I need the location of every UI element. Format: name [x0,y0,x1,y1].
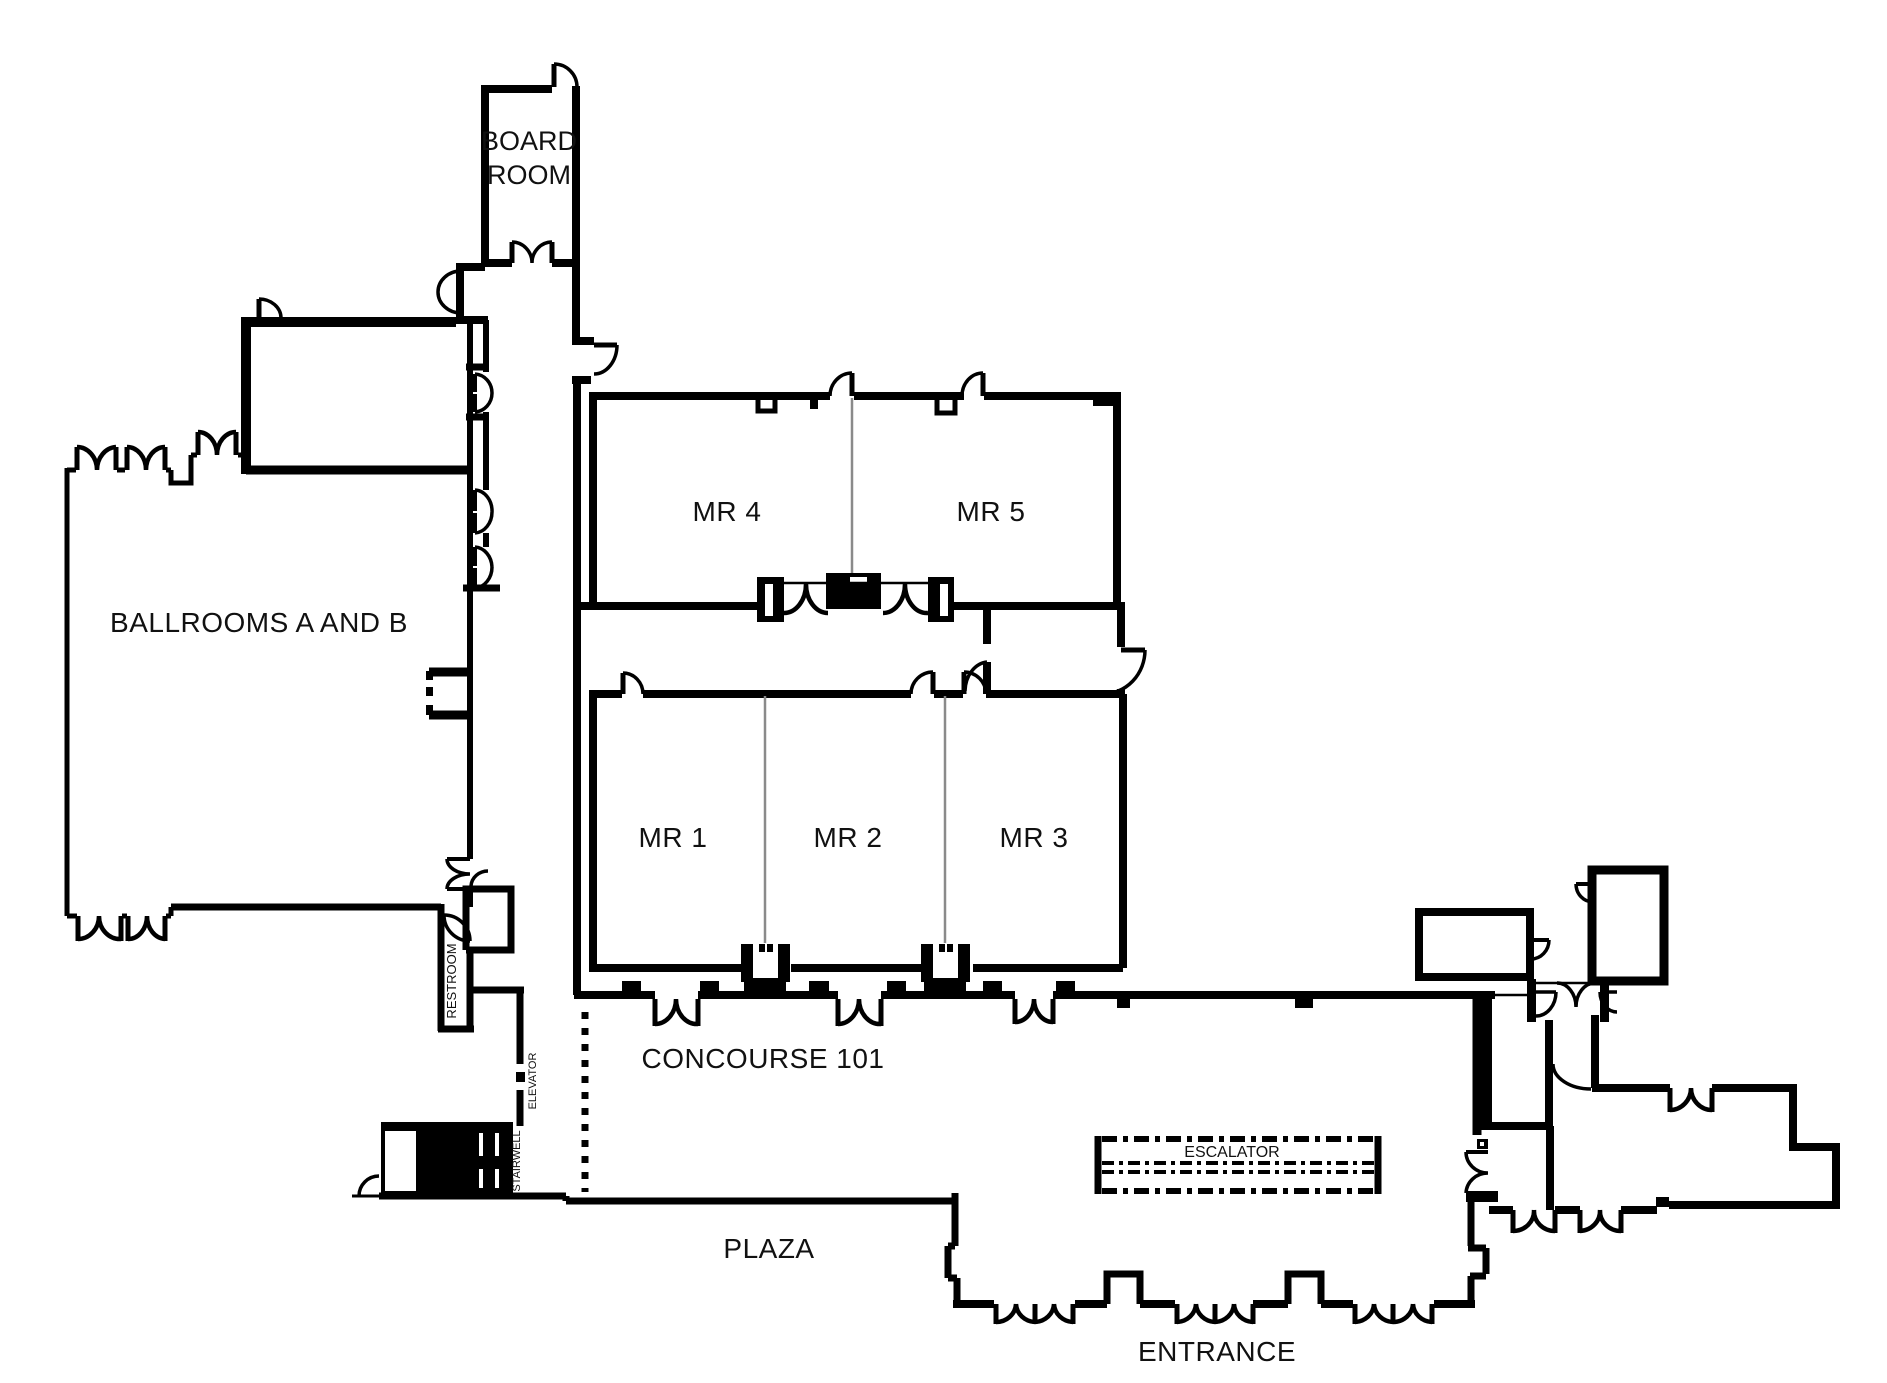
svg-text:MR 5: MR 5 [957,496,1026,527]
svg-text:ESCALATOR: ESCALATOR [1184,1144,1279,1161]
svg-text:MR 2: MR 2 [814,822,883,853]
svg-text:BOARD: BOARD [481,126,577,156]
svg-text:MR 1: MR 1 [639,822,708,853]
svg-text:MR 3: MR 3 [1000,822,1069,853]
svg-text:ENTRANCE: ENTRANCE [1138,1336,1296,1367]
svg-text:ROOM: ROOM [487,160,571,190]
svg-text:ELEVATOR: ELEVATOR [527,1053,539,1110]
svg-text:CONCOURSE 101: CONCOURSE 101 [641,1043,884,1074]
svg-text:STAIRWELL: STAIRWELL [511,1130,523,1191]
svg-text:RESTROOM: RESTROOM [444,943,459,1018]
svg-text:PLAZA: PLAZA [723,1233,814,1264]
svg-text:MR 4: MR 4 [693,496,762,527]
svg-text:BALLROOMS A AND B: BALLROOMS A AND B [110,607,408,638]
